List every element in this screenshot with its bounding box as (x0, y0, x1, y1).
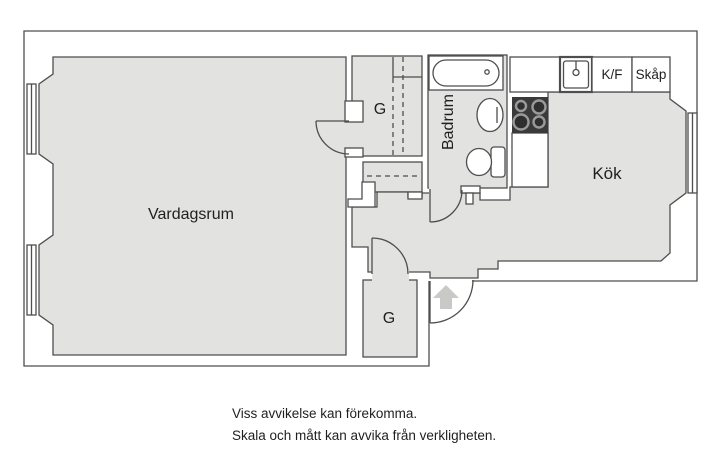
bathroom-label: Badrum (440, 94, 457, 150)
bathroom-door-opening (429, 184, 461, 194)
floor-plan-svg: Vardagsrum G G Badrum Kök K/F Skåp Viss … (0, 0, 728, 459)
fridge-freezer-label: K/F (601, 67, 622, 82)
upper-closet-label: G (374, 101, 386, 118)
burner-icon (533, 101, 546, 114)
lower-closet-door-opening (372, 270, 409, 281)
floor-plan-drawing: Vardagsrum G G Badrum Kök K/F Skåp Viss … (24, 31, 697, 443)
wall-jamb (345, 148, 363, 157)
disclaimer-line-2: Skala och mått kan avvika från verklighe… (232, 428, 496, 443)
kitchen-counter (510, 57, 560, 92)
floor-plan-page: Vardagsrum G G Badrum Kök K/F Skåp Viss … (0, 0, 728, 459)
wall-jamb (408, 192, 422, 199)
living-room-door-opening (344, 122, 354, 148)
entrance-arrow-icon (433, 285, 459, 309)
living-room-label: Vardagsrum (148, 206, 234, 223)
wall-jamb (466, 193, 473, 204)
toilet-tank (491, 147, 505, 177)
bathroom-sink (477, 99, 503, 132)
cabinet-label: Skåp (636, 67, 667, 82)
lower-closet-label: G (383, 310, 395, 327)
burner-icon (516, 101, 526, 111)
wall-jamb (461, 186, 480, 193)
burner-icon (514, 115, 529, 130)
kitchen-faucet-icon (573, 70, 579, 76)
toilet-bowl (467, 149, 492, 176)
disclaimer-line-1: Viss avvikelse kan förekomma. (232, 406, 417, 421)
kitchen-counter-lower (512, 133, 548, 187)
stove (512, 97, 548, 133)
burner-icon (534, 117, 545, 128)
wall-jamb (345, 101, 363, 122)
kitchen-label: Kök (592, 164, 622, 183)
